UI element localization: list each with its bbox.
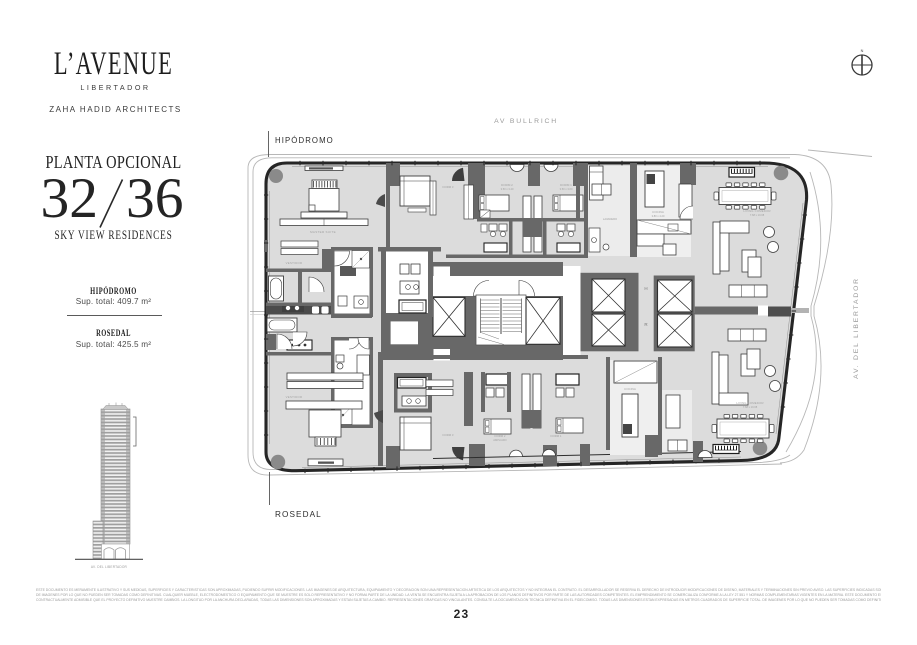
svg-text:3.80 x 4.20: 3.80 x 4.20 bbox=[652, 214, 665, 218]
svg-text:AV. DEL LIBERTADOR: AV. DEL LIBERTADOR bbox=[853, 277, 860, 379]
svg-text:3.50 x 3.60: 3.50 x 3.60 bbox=[560, 187, 573, 191]
svg-text:COCINA: COCINA bbox=[652, 210, 664, 214]
svg-text:DORM 3: DORM 3 bbox=[443, 185, 454, 189]
svg-text:DORM 1: DORM 1 bbox=[551, 434, 562, 438]
svg-text:MASTER SUITE: MASTER SUITE bbox=[310, 230, 336, 234]
svg-text:VESTIDOR: VESTIDOR bbox=[286, 261, 303, 265]
svg-text:N: N bbox=[861, 49, 864, 53]
svg-text:HIPÓDROMO: HIPÓDROMO bbox=[275, 136, 334, 145]
svg-text:LAVADERO: LAVADERO bbox=[603, 217, 617, 221]
svg-text:ROSEDAL: ROSEDAL bbox=[275, 510, 322, 519]
svg-text:H: H bbox=[644, 286, 647, 291]
svg-text:7.68 x 10.08: 7.68 x 10.08 bbox=[750, 213, 765, 217]
svg-text:DORM 2: DORM 2 bbox=[501, 183, 513, 187]
svg-text:3.50 x 3.40: 3.50 x 3.40 bbox=[501, 187, 514, 191]
svg-text:DORM 1: DORM 1 bbox=[560, 183, 572, 187]
svg-text:LIVING COMEDOR: LIVING COMEDOR bbox=[736, 401, 763, 405]
svg-text:DORM 3: DORM 3 bbox=[443, 433, 454, 437]
svg-text:AV. DEL LIBERTADOR: AV. DEL LIBERTADOR bbox=[91, 565, 128, 569]
svg-text:7.68 x 10.08: 7.68 x 10.08 bbox=[743, 405, 758, 409]
svg-text:COCINA: COCINA bbox=[624, 387, 636, 391]
svg-text:VESTIDOR: VESTIDOR bbox=[286, 395, 303, 399]
svg-text:AV BULLRICH: AV BULLRICH bbox=[494, 118, 558, 125]
svg-text:LIVING COMEDOR: LIVING COMEDOR bbox=[743, 209, 770, 213]
svg-text:DORM 2: DORM 2 bbox=[495, 434, 506, 438]
svg-text:AMPLIADO: AMPLIADO bbox=[493, 438, 506, 442]
